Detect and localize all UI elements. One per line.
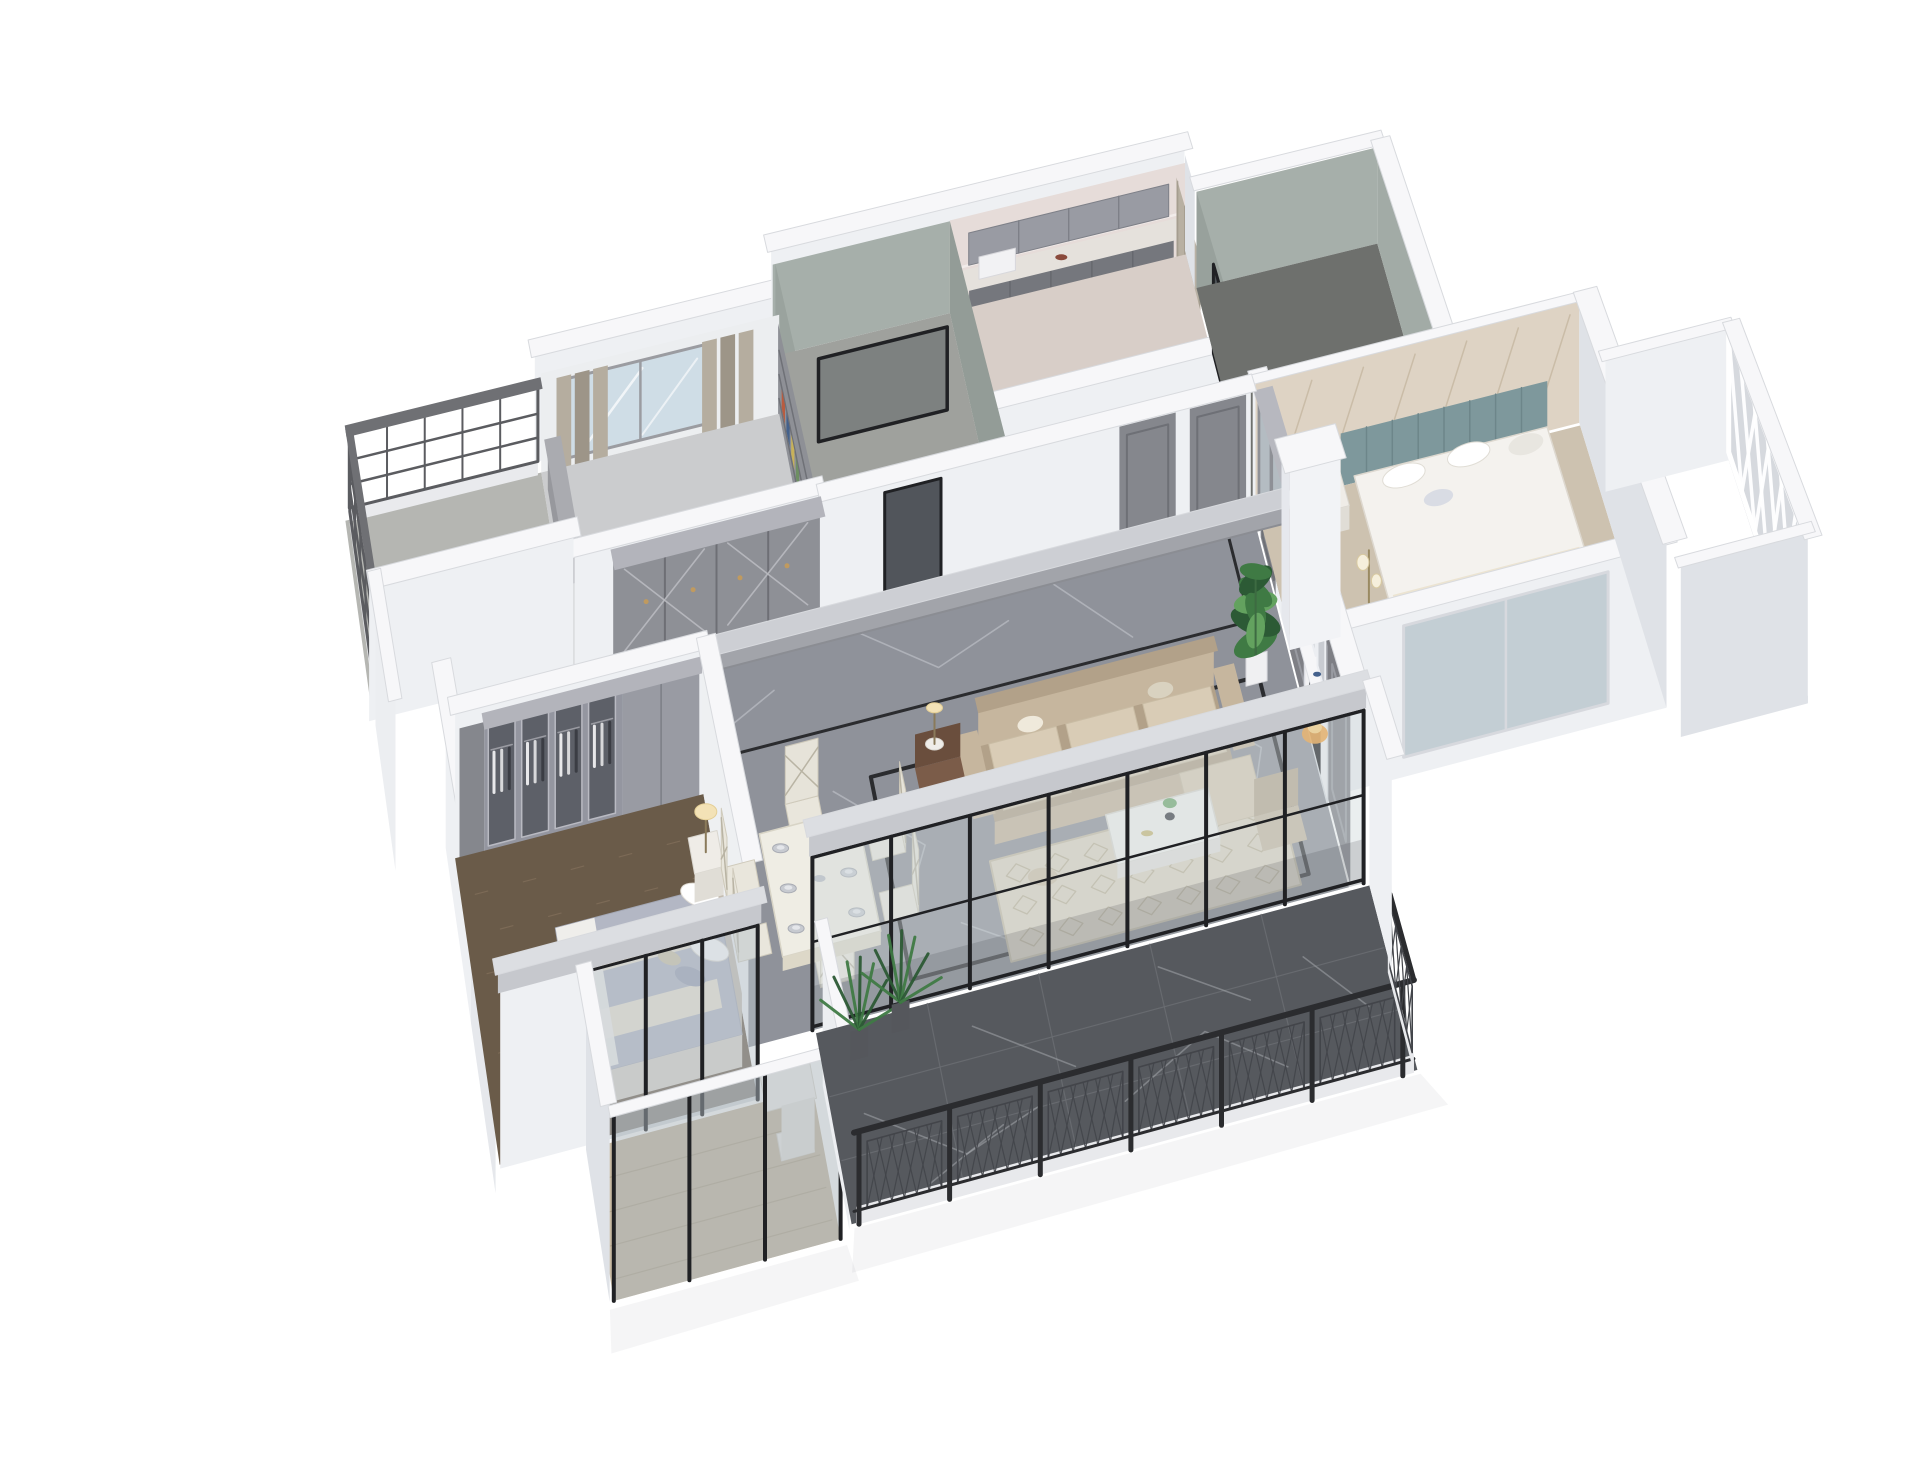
side-lamp (927, 703, 943, 713)
curtain (739, 330, 754, 428)
curtain (575, 370, 590, 468)
white-pillar (1274, 424, 1346, 650)
curtain (593, 365, 608, 463)
curtain (720, 334, 735, 432)
mantel-books (1313, 672, 1321, 677)
plant-pot (892, 1000, 910, 1033)
curtain (702, 339, 717, 437)
plant-pot (850, 1027, 868, 1061)
floorplan-3d-render: 3D cutaway dollhouse rendering of an apa… (0, 0, 1920, 1468)
table-lamp (695, 804, 717, 820)
apartment-dollhouse-svg (0, 0, 1920, 1468)
bowl (1055, 254, 1067, 260)
master-door (460, 722, 485, 861)
